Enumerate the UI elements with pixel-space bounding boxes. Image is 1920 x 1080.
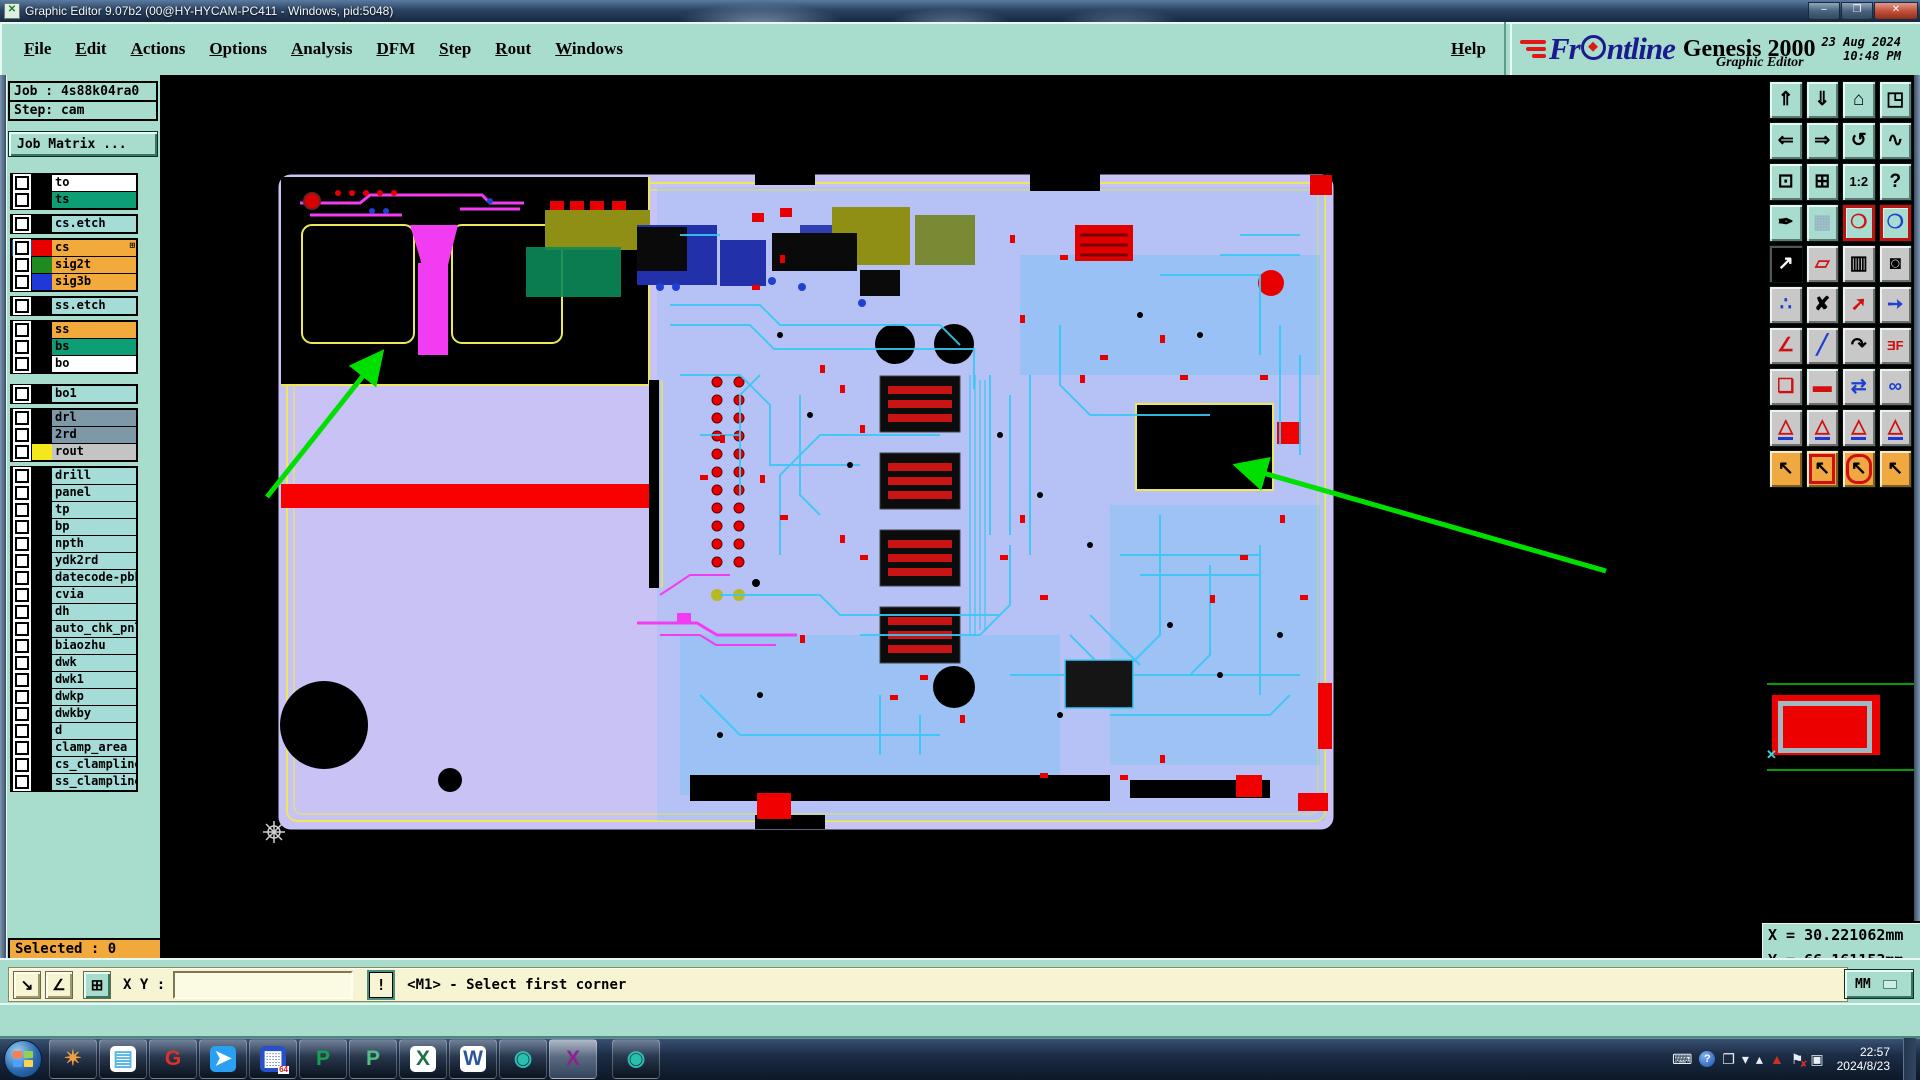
- layer-checkbox[interactable]: [12, 536, 32, 552]
- center-view-icon: ⊞: [1814, 172, 1830, 192]
- copy-to-layer-button[interactable]: ❏: [1769, 368, 1803, 406]
- job-info-box: Job : 4s88k04ra0 Step: cam: [8, 81, 158, 121]
- mirror-text-icon: ƎF: [1887, 336, 1904, 356]
- layer-checkbox-box: [15, 588, 29, 602]
- highlight-net-a-icon: ❍: [1850, 213, 1867, 233]
- diagonal-mode-button[interactable]: ↘: [13, 971, 41, 999]
- menu-help[interactable]: Help: [1451, 39, 1486, 59]
- setup-tools-icon: ✒: [1778, 213, 1794, 233]
- center-view-button[interactable]: ⊞: [1806, 163, 1840, 201]
- layer-row-to[interactable]: to: [12, 175, 136, 192]
- pan-right-icon: ⇒: [1814, 131, 1830, 151]
- layer-checkbox[interactable]: [12, 468, 32, 484]
- layer-checkbox-box: [15, 428, 29, 442]
- layer-row-cvia[interactable]: cvia: [12, 587, 136, 604]
- messenger-icon: ➤: [210, 1046, 236, 1072]
- layer-color-swatch[interactable]: [32, 298, 52, 314]
- layer-checkbox-box: [15, 656, 29, 670]
- keyboard-icon[interactable]: ⌨: [1672, 1051, 1692, 1068]
- layer-name-label: bo1: [52, 386, 136, 402]
- close-button[interactable]: ✕: [1874, 2, 1918, 20]
- layer-color-swatch[interactable]: [32, 444, 52, 460]
- measure-width-icon: ⇄: [1851, 377, 1867, 397]
- menu-edit[interactable]: Edit: [75, 39, 106, 59]
- menu-options[interactable]: Options: [209, 39, 267, 59]
- layer-checkbox[interactable]: [12, 757, 32, 773]
- layer-color-swatch[interactable]: [32, 655, 52, 671]
- taskbar-messenger-icon[interactable]: ➤: [199, 1039, 247, 1079]
- layer-color-swatch[interactable]: [32, 706, 52, 722]
- angle-measure-button[interactable]: ∠: [1769, 327, 1803, 365]
- layer-row-ss.etch[interactable]: ss.etch: [12, 298, 136, 314]
- layer-checkbox[interactable]: [12, 257, 32, 273]
- network-icon[interactable]: ▣: [1810, 1051, 1823, 1068]
- layer-color-swatch[interactable]: [32, 410, 52, 426]
- taskbar-word-icon[interactable]: W: [449, 1039, 497, 1079]
- select-net-button[interactable]: ↖: [1879, 450, 1913, 488]
- layer-row-drill[interactable]: drill: [12, 468, 136, 485]
- layer-row-bo1[interactable]: bo1: [12, 386, 136, 402]
- layer-row-bp[interactable]: bp: [12, 519, 136, 536]
- net-points-icon: ∴: [1780, 295, 1792, 315]
- surface-mode-4-button[interactable]: △: [1879, 409, 1913, 447]
- error-overlay-icon: ✘: [1800, 1059, 1808, 1070]
- shape-select-button[interactable]: ▱: [1806, 245, 1840, 283]
- layer-name-label: auto_chk_pnl: [52, 621, 136, 637]
- layer-color-swatch[interactable]: [32, 502, 52, 518]
- layer-checkbox[interactable]: [12, 444, 32, 460]
- round-shapes-button[interactable]: ∞: [1879, 368, 1913, 406]
- layer-checkbox-box: [15, 622, 29, 636]
- home-view-button[interactable]: ⌂: [1842, 81, 1876, 119]
- invert-select-icon: ↗: [1778, 254, 1794, 274]
- layer-row-cs_clampline[interactable]: cs_clampline: [12, 757, 136, 774]
- layer-color-swatch[interactable]: [32, 192, 52, 208]
- menu-windows[interactable]: Windows: [555, 39, 623, 59]
- layer-checkbox-box: [15, 387, 29, 401]
- menu-actions[interactable]: Actions: [131, 39, 186, 59]
- home-view-icon: ⌂: [1853, 90, 1864, 110]
- right-toolbar: ⇑⇓⌂◳⇐⇒↺∿⊡⊞1:2?✒▦❍❍↗▱▥◙∴✘➚➙∠╱↷ƎF❏▬⇄∞△△△△↖…: [1767, 75, 1914, 960]
- menu-step[interactable]: Step: [439, 39, 471, 59]
- rotate-button[interactable]: ↷: [1842, 327, 1876, 365]
- tool-grid: ⇑⇓⌂◳⇐⇒↺∿⊡⊞1:2?✒▦❍❍↗▱▥◙∴✘➚➙∠╱↷ƎF❏▬⇄∞△△△△↖…: [1767, 75, 1914, 488]
- layer-checkbox[interactable]: [12, 356, 32, 372]
- layer-color-swatch[interactable]: [32, 240, 52, 256]
- layer-checkbox[interactable]: [12, 274, 32, 290]
- taskbar-genesis-disc-icon[interactable]: ◉: [499, 1039, 547, 1079]
- show-desktop-button[interactable]: [1903, 1038, 1916, 1080]
- layer-checkbox[interactable]: [12, 192, 32, 208]
- layer-group: drl2rdrout: [10, 408, 138, 462]
- layer-checkbox[interactable]: [12, 216, 32, 232]
- layer-name-label: bp: [52, 519, 136, 535]
- view-down-button[interactable]: ⇓: [1806, 81, 1840, 119]
- pad-select-button[interactable]: ◙: [1879, 245, 1913, 283]
- grid-snap-button[interactable]: ⊞: [83, 971, 111, 999]
- taskbar-excel-icon[interactable]: X: [399, 1039, 447, 1079]
- menu-items: FileEditActionsOptionsAnalysisDFMStepRou…: [0, 39, 623, 59]
- layer-row-dwk1[interactable]: dwk1: [12, 672, 136, 689]
- layer-color-swatch[interactable]: [32, 274, 52, 290]
- layer-checkbox-box: [15, 275, 29, 289]
- layer-checkbox-box: [15, 193, 29, 207]
- layer-name-label: bs: [52, 339, 136, 355]
- layer-checkbox[interactable]: [12, 410, 32, 426]
- layer-name-label: sig3b: [52, 274, 136, 290]
- prompt-marker-button[interactable]: !: [367, 970, 395, 1000]
- shell-icon: ✴: [60, 1046, 86, 1072]
- layer-checkbox[interactable]: [12, 485, 32, 501]
- layer-row-drl[interactable]: drl: [12, 410, 136, 427]
- xy-label: X Y :: [123, 977, 165, 993]
- system-tray: ⌨?❐▾▴▲⚑✘▣ 22:57 2024/8/23: [1672, 1038, 1920, 1080]
- layer-row-clamp_area[interactable]: clamp_area: [12, 740, 136, 757]
- pan-left-button[interactable]: ⇐: [1769, 122, 1803, 160]
- job-matrix-button[interactable]: Job Matrix ...: [8, 131, 158, 157]
- stretch-line-button[interactable]: ▬: [1806, 368, 1840, 406]
- layer-checkbox-box: [15, 340, 29, 354]
- layer-name-label: to: [52, 175, 136, 191]
- layer-checkbox[interactable]: [12, 655, 32, 671]
- layer-checkbox-box: [15, 357, 29, 371]
- layer-name-label: drl: [52, 410, 136, 426]
- units-selector-button[interactable]: MM: [1844, 969, 1914, 999]
- layer-row-sig2t[interactable]: sig2t: [12, 257, 136, 274]
- layer-checkbox-box: [15, 323, 29, 337]
- surface-mode-4-icon: △: [1888, 417, 1903, 440]
- layer-row-ss_clampline[interactable]: ss_clampline: [12, 774, 136, 790]
- ruler-icon: ▥: [1850, 254, 1868, 274]
- layer-name-label: cs⊞: [52, 240, 136, 256]
- layer-checkbox-box: [15, 469, 29, 483]
- layer-row-ts[interactable]: ts: [12, 192, 136, 208]
- layer-row-rout[interactable]: rout: [12, 444, 136, 460]
- layer-group: cs.etch: [10, 214, 138, 234]
- brand-block: Frntline Genesis 2000 23 Aug 2024 10:48 …: [1520, 22, 1920, 75]
- layer-group: tots: [10, 173, 138, 210]
- exceed-x-icon: X: [560, 1046, 586, 1072]
- surface-mode-2-icon: △: [1815, 417, 1830, 440]
- layer-checkbox[interactable]: [12, 774, 32, 790]
- layer-color-swatch[interactable]: [32, 638, 52, 654]
- pad-origin-marker: ✕: [1766, 747, 1777, 763]
- delete-icon: ✘: [1814, 295, 1830, 315]
- layer-row-biaozhu[interactable]: biaozhu: [12, 638, 136, 655]
- layer-row-auto_chk_pnl[interactable]: auto_chk_pnl: [12, 621, 136, 638]
- show-hidden-icon[interactable]: ▴: [1756, 1051, 1763, 1068]
- layer-checkbox[interactable]: [12, 240, 32, 256]
- layer-checkbox-box: [15, 724, 29, 738]
- angle-mode-button[interactable]: ∠: [45, 971, 73, 999]
- layer-context-icon: ⊞: [130, 242, 135, 251]
- highlight-net-b-button[interactable]: ❍: [1879, 204, 1913, 242]
- layer-name-label: dwkby: [52, 706, 136, 722]
- brand-datetime: 23 Aug 2024 10:48 PM: [1822, 35, 1901, 63]
- excel-icon: X: [410, 1046, 436, 1072]
- step-label: Step: cam: [10, 102, 156, 119]
- layer-row-dwkp[interactable]: dwkp: [12, 689, 136, 706]
- word-icon: W: [460, 1046, 486, 1072]
- layer-checkbox[interactable]: [12, 386, 32, 402]
- maximize-button[interactable]: ❐: [1841, 2, 1873, 20]
- layer-row-sig3b[interactable]: sig3b: [12, 274, 136, 290]
- layer-color-swatch[interactable]: [32, 723, 52, 739]
- window-frame-right: [1914, 75, 1920, 1038]
- taskbar-p-lightgreen-icon[interactable]: P: [349, 1039, 397, 1079]
- product-subtitle: Graphic Editor: [1716, 55, 1804, 71]
- layer-checkbox[interactable]: [12, 553, 32, 569]
- select-polygon-icon: ↖: [1851, 459, 1867, 479]
- layer-row-dwkby[interactable]: dwkby: [12, 706, 136, 723]
- layer-row-d[interactable]: d: [12, 723, 136, 740]
- layer-color-swatch[interactable]: [32, 621, 52, 637]
- layer-name-label: datecode-pbh: [52, 570, 136, 586]
- layer-checkbox[interactable]: [12, 706, 32, 722]
- layer-color-swatch[interactable]: [32, 386, 52, 402]
- menu-dfm[interactable]: DFM: [376, 39, 415, 59]
- net-points-button[interactable]: ∴: [1769, 286, 1803, 324]
- layer-checkbox[interactable]: [12, 570, 32, 586]
- layer-color-swatch[interactable]: [32, 774, 52, 790]
- view-down-icon: ⇓: [1814, 90, 1830, 110]
- taskbar-apps: ✴▤G➤▦64PPXW◉X◉: [48, 1039, 661, 1079]
- menu-analysis[interactable]: Analysis: [291, 39, 352, 59]
- layer-name-label: drill: [52, 468, 136, 484]
- layer-color-swatch[interactable]: [32, 587, 52, 603]
- stretch-line-icon: ▬: [1813, 377, 1832, 397]
- job-label: Job : 4s88k04ra0: [10, 83, 156, 102]
- layer-checkbox[interactable]: [12, 689, 32, 705]
- layer-checkbox[interactable]: [12, 740, 32, 756]
- p-green-icon: P: [310, 1046, 336, 1072]
- select-frame-button[interactable]: ↖: [1806, 450, 1840, 488]
- layer-color-swatch[interactable]: [32, 553, 52, 569]
- setup-tools-button[interactable]: ✒: [1769, 204, 1803, 242]
- measure-width-button[interactable]: ⇄: [1842, 368, 1876, 406]
- brand-divider: [1504, 22, 1512, 75]
- split-window-xy-icon: ◳: [1886, 90, 1904, 110]
- surface-mode-1-button[interactable]: △: [1769, 409, 1803, 447]
- action-center-flag-icon[interactable]: ⚑✘: [1791, 1051, 1804, 1068]
- layer-color-swatch[interactable]: [32, 604, 52, 620]
- xy-coordinate-input[interactable]: [173, 971, 353, 999]
- layer-color-swatch[interactable]: [32, 427, 52, 443]
- surface-mode-3-button[interactable]: △: [1842, 409, 1876, 447]
- layer-checkbox-box: [15, 445, 29, 459]
- layer-color-swatch[interactable]: [32, 175, 52, 191]
- layer-row-ss[interactable]: ss: [12, 322, 136, 339]
- layer-row-dh[interactable]: dh: [12, 604, 136, 621]
- taskbar-g-app-icon[interactable]: G: [149, 1039, 197, 1079]
- layer-color-swatch[interactable]: [32, 570, 52, 586]
- move-icon: ➙: [1887, 295, 1903, 315]
- line-draw-button[interactable]: ╱: [1806, 327, 1840, 365]
- layer-name-label: rout: [52, 444, 136, 460]
- layer-list: totscs.etchcs⊞sig2tsig3bss.etchssbsbobo1…: [10, 173, 138, 792]
- layer-color-swatch[interactable]: [32, 322, 52, 338]
- editor-canvas[interactable]: [160, 75, 1767, 960]
- delete-button[interactable]: ✘: [1806, 286, 1840, 324]
- mirror-text-button[interactable]: ƎF: [1879, 327, 1913, 365]
- taskbar-backup-floppy-icon[interactable]: ▦64: [249, 1039, 297, 1079]
- start-button[interactable]: [4, 1040, 42, 1078]
- layer-checkbox[interactable]: [12, 519, 32, 535]
- layer-checkbox[interactable]: [12, 672, 32, 688]
- layer-color-swatch[interactable]: [32, 468, 52, 484]
- layer-checkbox[interactable]: [12, 587, 32, 603]
- layer-row-ydk2rd[interactable]: ydk2rd: [12, 553, 136, 570]
- layer-checkbox[interactable]: [12, 621, 32, 637]
- layer-checkbox[interactable]: [12, 638, 32, 654]
- layer-name-label: dwk1: [52, 672, 136, 688]
- layer-checkbox[interactable]: [12, 339, 32, 355]
- layer-row-bs[interactable]: bs: [12, 339, 136, 356]
- taskbar-p-green-icon[interactable]: P: [299, 1039, 347, 1079]
- view-up-button[interactable]: ⇑: [1769, 81, 1803, 119]
- layer-checkbox-box: [15, 758, 29, 772]
- genesis-disc-2-icon: ◉: [623, 1046, 649, 1072]
- ruler-button[interactable]: ▥: [1842, 245, 1876, 283]
- layer-checkbox[interactable]: [12, 427, 32, 443]
- layer-name-label: biaozhu: [52, 638, 136, 654]
- taskbar-shell-icon[interactable]: ✴: [49, 1039, 97, 1079]
- layer-row-panel[interactable]: panel: [12, 485, 136, 502]
- layer-checkbox[interactable]: [12, 604, 32, 620]
- units-dropdown-notch: [1883, 980, 1897, 989]
- zoom-1-2-button[interactable]: 1:2: [1842, 163, 1876, 201]
- status-bar: ↘ ∠ ⊞ X Y : ! <M1> - Select first corner…: [0, 958, 1920, 1003]
- layer-color-swatch[interactable]: [32, 757, 52, 773]
- layer-name-label: 2rd: [52, 427, 136, 443]
- command-prompt-text: <M1> - Select first corner: [407, 977, 626, 993]
- layer-name-label: dwkp: [52, 689, 136, 705]
- layer-row-cs[interactable]: cs⊞: [12, 240, 136, 257]
- taskbar-exceed-x-icon[interactable]: X: [549, 1039, 597, 1079]
- surface-mode-2-button[interactable]: △: [1806, 409, 1840, 447]
- pcb-drawing: [160, 75, 1767, 960]
- select-single-button[interactable]: ↖: [1769, 450, 1803, 488]
- shape-select-icon: ▱: [1815, 254, 1830, 274]
- surface-mode-1-icon: △: [1778, 417, 1793, 440]
- layer-row-npth[interactable]: npth: [12, 536, 136, 553]
- layer-checkbox[interactable]: [12, 298, 32, 314]
- layer-name-label: bo: [52, 356, 136, 372]
- grid-button[interactable]: ▦: [1806, 204, 1840, 242]
- layer-color-swatch[interactable]: [32, 356, 52, 372]
- menu-file[interactable]: File: [24, 39, 51, 59]
- serpentine-icon: ∿: [1887, 131, 1903, 151]
- layer-name-label: cs.etch: [52, 216, 136, 232]
- frontline-o-icon: [1581, 35, 1606, 60]
- layer-color-swatch[interactable]: [32, 257, 52, 273]
- taskbar-genesis-disc-2-icon[interactable]: ◉: [612, 1039, 660, 1079]
- taskbar-clock[interactable]: 22:57 2024/8/23: [1837, 1045, 1890, 1073]
- menu-rout[interactable]: Rout: [495, 39, 531, 59]
- help-mode-button[interactable]: ?: [1879, 163, 1913, 201]
- layer-checkbox[interactable]: [12, 723, 32, 739]
- rotate-icon: ↷: [1851, 336, 1867, 356]
- round-shapes-icon: ∞: [1888, 377, 1902, 397]
- layer-checkbox-box: [15, 639, 29, 653]
- layer-row-2rd[interactable]: 2rd: [12, 427, 136, 444]
- badge-label: 64: [278, 1066, 289, 1074]
- layer-row-dwk[interactable]: dwk: [12, 655, 136, 672]
- layer-color-swatch[interactable]: [32, 485, 52, 501]
- line-draw-icon: ╱: [1817, 336, 1828, 356]
- select-polygon-button[interactable]: ↖: [1842, 450, 1876, 488]
- g-app-icon: G: [160, 1046, 186, 1072]
- layer-checkbox-box: [15, 176, 29, 190]
- layer-color-swatch[interactable]: [32, 216, 52, 232]
- sidebar: Job : 4s88k04ra0 Step: cam Job Matrix ..…: [6, 75, 160, 967]
- layer-checkbox-box: [15, 554, 29, 568]
- help-circle-icon[interactable]: ?: [1699, 1051, 1715, 1067]
- fit-view-button[interactable]: ⊡: [1769, 163, 1803, 201]
- genesis-disc-icon: ◉: [510, 1046, 536, 1072]
- copy-button[interactable]: ➚: [1842, 286, 1876, 324]
- move-button[interactable]: ➙: [1879, 286, 1913, 324]
- notepad-icon: ▤: [110, 1046, 136, 1072]
- previous-view-button[interactable]: ↺: [1842, 122, 1876, 160]
- invert-select-button[interactable]: ↗: [1769, 245, 1803, 283]
- serpentine-button[interactable]: ∿: [1879, 122, 1913, 160]
- taskbar-notepad-icon[interactable]: ▤: [99, 1039, 147, 1079]
- layer-checkbox[interactable]: [12, 322, 32, 338]
- layer-group: cs⊞sig2tsig3b: [10, 238, 138, 292]
- layer-row-cs.etch[interactable]: cs.etch: [12, 216, 136, 232]
- restore-window-icon[interactable]: ❐: [1722, 1051, 1735, 1068]
- layer-checkbox[interactable]: [12, 175, 32, 191]
- pad-select-icon: ◙: [1890, 254, 1901, 274]
- layer-color-swatch[interactable]: [32, 672, 52, 688]
- layer-checkbox-box: [15, 605, 29, 619]
- frontline-logo: Frntline: [1520, 31, 1675, 67]
- chevron-down-icon[interactable]: ▾: [1742, 1051, 1749, 1068]
- layer-color-swatch[interactable]: [32, 536, 52, 552]
- minimize-button[interactable]: –: [1808, 2, 1840, 20]
- gpu-triangle-icon[interactable]: ▲: [1770, 1051, 1784, 1067]
- layer-row-bo[interactable]: bo: [12, 356, 136, 372]
- layer-color-swatch[interactable]: [32, 339, 52, 355]
- split-window-xy-button[interactable]: ◳: [1879, 81, 1913, 119]
- layer-row-datecode-pbh[interactable]: datecode-pbh: [12, 570, 136, 587]
- layer-checkbox[interactable]: [12, 502, 32, 518]
- layer-group: bo1: [10, 384, 138, 404]
- layer-name-label: cvia: [52, 587, 136, 603]
- layer-name-label: ts: [52, 192, 136, 208]
- layer-checkbox-box: [15, 299, 29, 313]
- zoom-1-2-icon: 1:2: [1849, 172, 1868, 192]
- cursor-x-readout: X = 30.221062mm: [1762, 923, 1920, 948]
- layer-color-swatch[interactable]: [32, 519, 52, 535]
- layer-checkbox-box: [15, 673, 29, 687]
- layer-checkbox-box: [15, 707, 29, 721]
- highlight-net-a-button[interactable]: ❍: [1842, 204, 1876, 242]
- layer-name-label: tp: [52, 502, 136, 518]
- pan-right-button[interactable]: ⇒: [1806, 122, 1840, 160]
- layer-group: drillpaneltpbpnpthydk2rddatecode-pbhcvia…: [10, 466, 138, 792]
- layer-row-tp[interactable]: tp: [12, 502, 136, 519]
- layer-color-swatch[interactable]: [32, 689, 52, 705]
- layer-checkbox-box: [15, 775, 29, 789]
- layer-color-swatch[interactable]: [32, 740, 52, 756]
- copy-icon: ➚: [1851, 295, 1867, 315]
- layer-checkbox-box: [15, 258, 29, 272]
- select-single-icon: ↖: [1778, 459, 1794, 479]
- title-bar: ✕ Graphic Editor 9.07b2 (00@HY-HYCAM-PC4…: [0, 0, 1920, 22]
- bottom-panel-strip: [0, 1003, 1920, 1038]
